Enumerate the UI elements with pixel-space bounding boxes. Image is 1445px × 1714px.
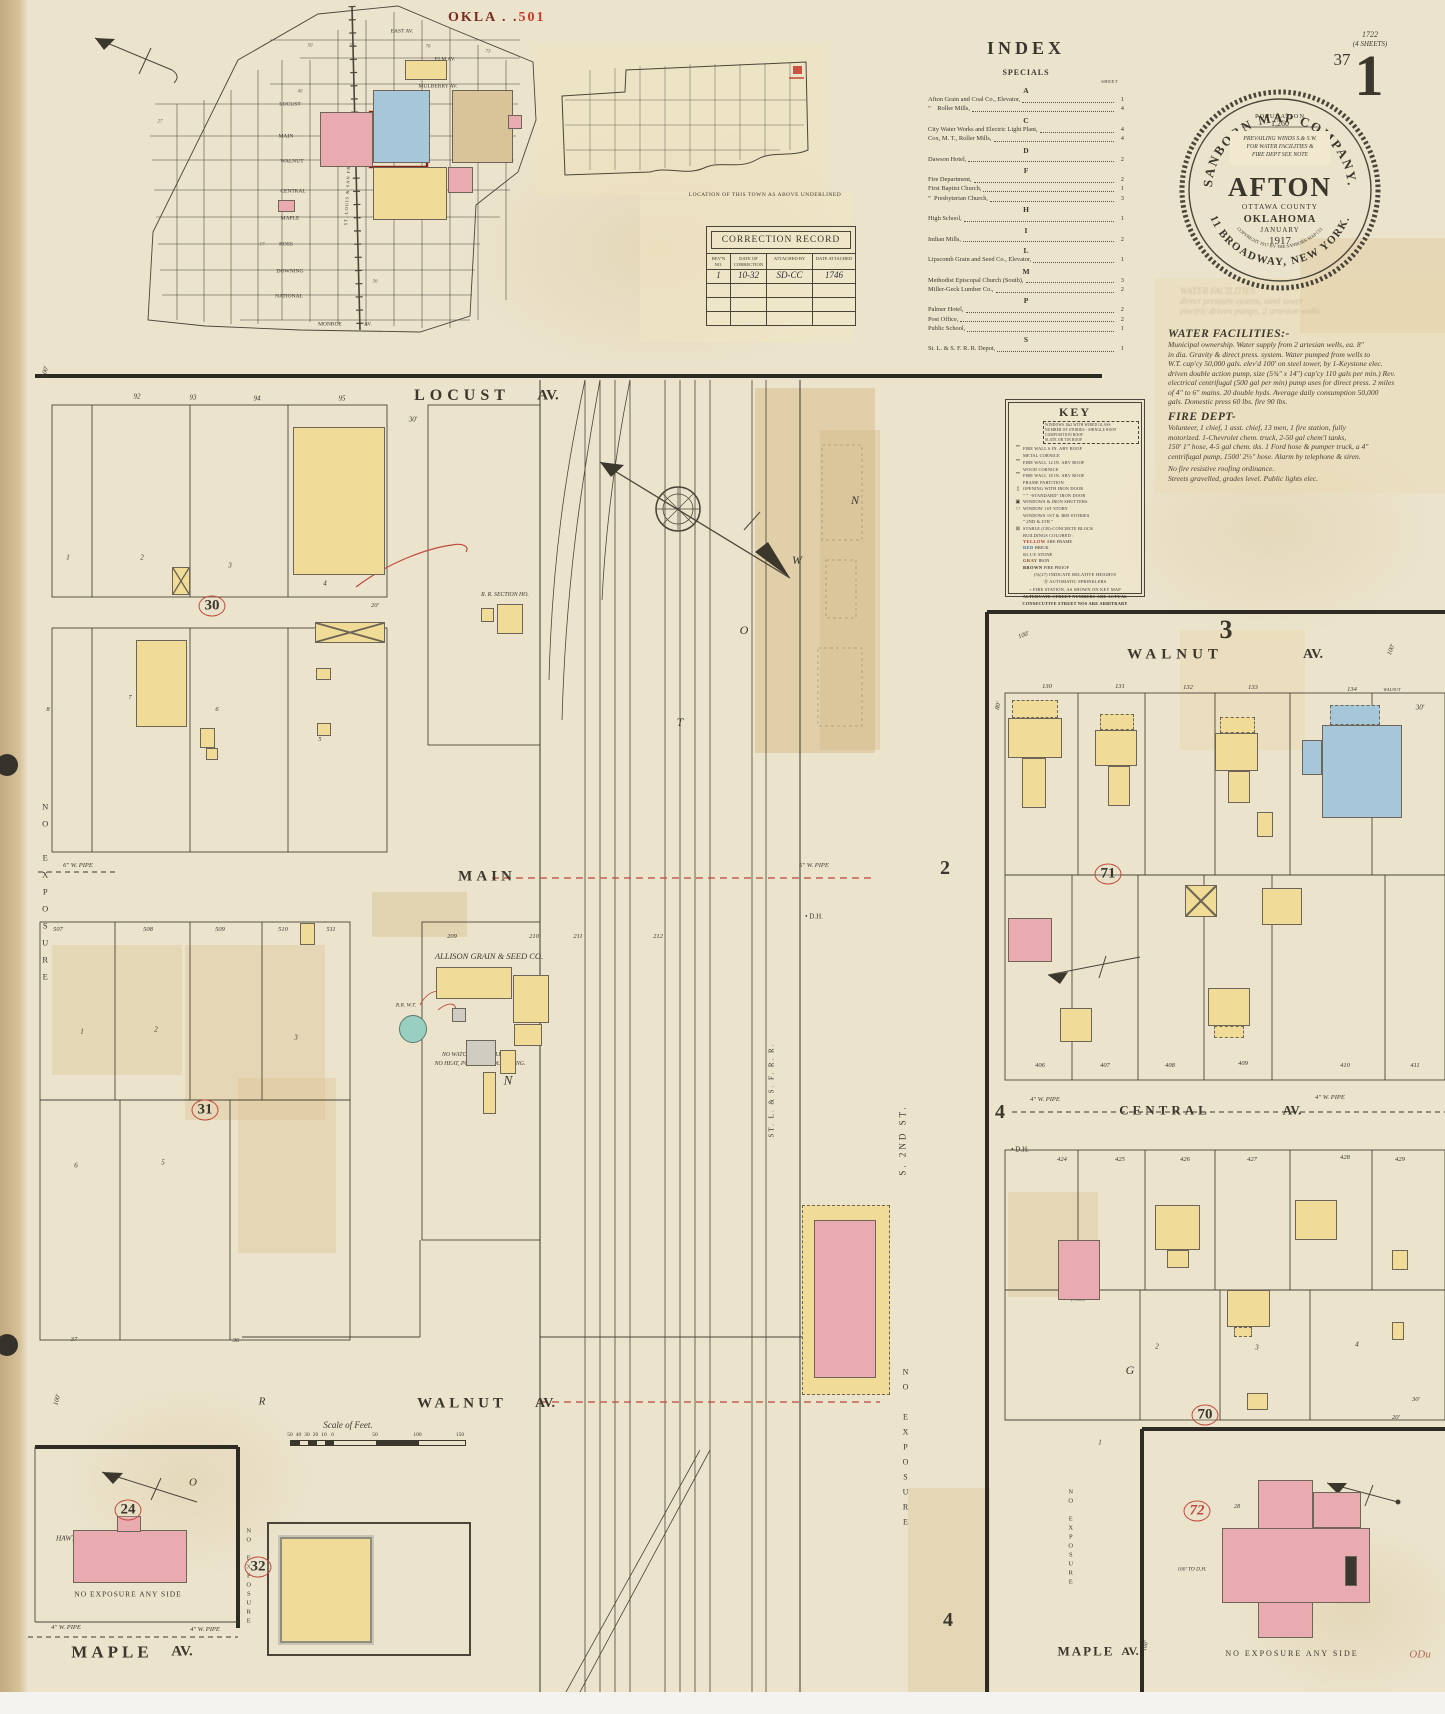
scale-tick: 0 [331, 1432, 334, 1438]
svg-text:OTTAWA COUNTY: OTTAWA COUNTY [1242, 202, 1318, 211]
svg-text:FOR WATER FACILITIES &: FOR WATER FACILITIES & [1245, 144, 1314, 150]
scale-tick: 50 [372, 1432, 378, 1438]
key-legend-footer: ALTERNATE STREET NUMBERS ARE ACTUAL [1009, 594, 1141, 600]
key-legend: KEY WINDOWS 1&2 WITH WIRED GLASSNUMBER O… [1008, 402, 1142, 594]
svg-text:AFTON: AFTON [1228, 172, 1332, 202]
water-facilities-line: electrical centrifugal (500 gal per min)… [1168, 378, 1444, 388]
key-legend-row: □WINDOW 1ST STORY [1013, 506, 1141, 513]
fire-dept-title: FIRE DEPT- [1168, 411, 1444, 423]
scale-ticks: 5040302010050100150 [290, 1432, 466, 1440]
key-legend-colors: YELLOW ARE FRAMERED BRICKBLUE STONEGRAY … [1023, 539, 1141, 572]
key-legend-sprinklers: Ⓢ AUTOMATIC SPRINKLERS [1009, 579, 1141, 585]
svg-text:PREVAILING WINDS S.& S.W.: PREVAILING WINDS S.& S.W. [1242, 136, 1317, 142]
svg-text:1,260: 1,260 [1271, 119, 1289, 128]
scale-tick: 100 [413, 1432, 421, 1438]
fire-dept-line: Volunteer, 1 chief, 1 asst. chief, 13 me… [1168, 423, 1444, 433]
key-legend-heights: (5)(27) INDICATE RELATIVE HEIGHTS [1009, 572, 1141, 578]
fire-dept-line: 150' 1" hose, 4-5 gal chem. tks. 1 Ford … [1168, 442, 1444, 452]
key-legend-row: ▣WINDOWS & IRON SHUTTERS [1013, 499, 1141, 506]
svg-text:FIRE DEPT SEE NOTE: FIRE DEPT SEE NOTE [1251, 152, 1309, 158]
scale-tick: 150 [456, 1432, 464, 1438]
scale-tick: 30 [304, 1432, 310, 1438]
key-legend-row: ▔FIRE WALL 12 IN. ABV ROOF [1013, 460, 1141, 467]
sanborn-seal: SANBORN MAP COMPANY. 11 BROADWAY, NEW YO… [0, 0, 1445, 1692]
svg-text:OKLAHOMA: OKLAHOMA [1244, 214, 1317, 225]
water-facilities-line: of 4" to 6" mains. 20 double hyds. Avera… [1168, 388, 1444, 398]
water-facilities-line: Municipal ownership. Water supply from 2… [1168, 340, 1444, 350]
scale-bar: Scale of Feet. 5040302010050100150 [290, 1420, 466, 1446]
key-legend-fire-station: + FIRE STATION, AS SHOWN ON KEY MAP [1009, 587, 1141, 593]
key-legend-row: ▯OPENING WITH IRON DOOR [1013, 486, 1141, 493]
svg-text:1917: 1917 [1269, 235, 1292, 247]
scale-label: Scale of Feet. [230, 1420, 466, 1430]
scale-tick: 50 [287, 1432, 293, 1438]
key-legend-row: ⊠STABLE (CB)-CONCRETE BLOCK [1013, 526, 1141, 533]
svg-text:JANUARY: JANUARY [1260, 226, 1299, 234]
water-facilities-line: W.T. cap'cy 50,000 gals. elev'd 100' on … [1168, 359, 1444, 369]
water-facilities-title: WATER FACILITIES:- [1168, 328, 1444, 340]
key-legend-footer: CONSECUTIVE STREET NOS ARE ARBITRARY [1009, 601, 1141, 607]
water-facilities-line: gals. Domestic press 60 lbs. fire 90 lbs… [1168, 397, 1444, 407]
fire-dept-line: centrifugal pump, 1500' 2½" hose. Alarm … [1168, 452, 1444, 462]
key-legend-row: ▔FIRE WALL 6 IN. ABV ROOF [1013, 446, 1141, 453]
fire-dept-line: motorized. 1-Chevrolet chem. truck, 2-50… [1168, 433, 1444, 443]
utility-notes: WATER FACILITIES:- Municipal ownership. … [1168, 328, 1444, 483]
scale-tick: 20 [313, 1432, 319, 1438]
key-legend-title: KEY [1009, 405, 1141, 420]
scale-tick: 10 [321, 1432, 327, 1438]
water-facilities-line: driven double action pump, size (5¾" x 1… [1168, 369, 1444, 379]
scale-segments [290, 1440, 466, 1446]
scale-tick: 40 [296, 1432, 302, 1438]
key-legend-row: ▔FIRE WALL 18 IN. ABV ROOF [1013, 473, 1141, 480]
water-facilities-line: in dia. Gravity & direct press. system. … [1168, 350, 1444, 360]
note-line: Streets gravelled, grades level. Public … [1168, 474, 1444, 484]
note-line: No fire resistive roofing ordinance. [1168, 464, 1444, 474]
sanborn-map-sheet: OKLA . .501 LOCATION OF THIS TOWN AS ABO… [0, 0, 1445, 1692]
key-legend-mini: WINDOWS 1&2 WITH WIRED GLASSNUMBER OF ST… [1043, 421, 1139, 444]
